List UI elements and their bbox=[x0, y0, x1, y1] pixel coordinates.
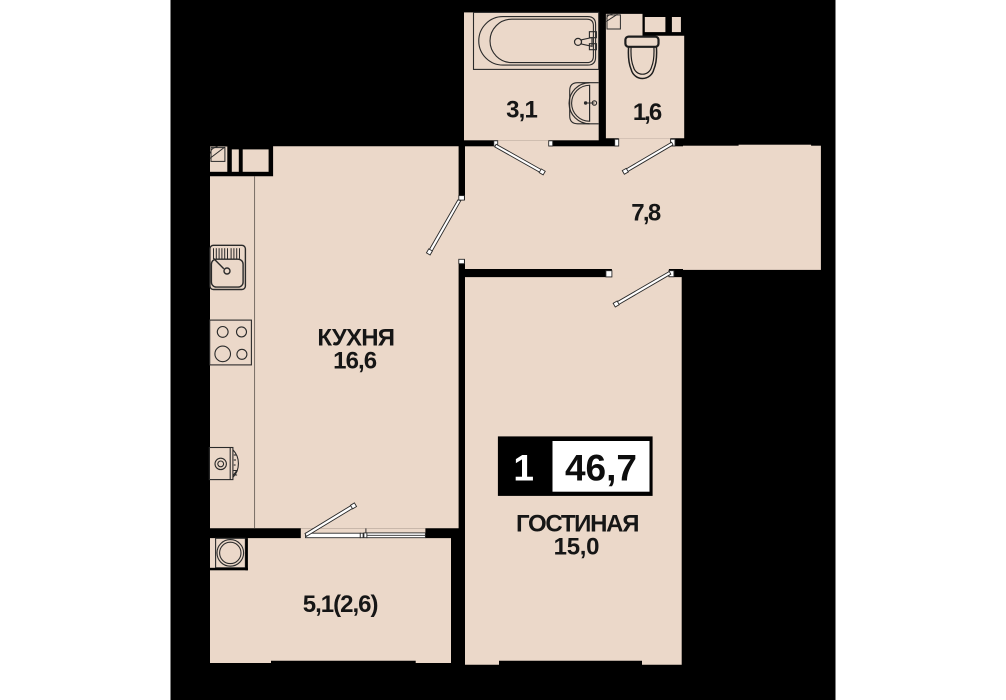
svg-text:16,6: 16,6 bbox=[333, 348, 377, 375]
svg-text:1,6: 1,6 bbox=[633, 99, 662, 126]
svg-text:46,7: 46,7 bbox=[565, 448, 637, 489]
svg-text:15,0: 15,0 bbox=[554, 534, 600, 561]
svg-text:3,1: 3,1 bbox=[506, 96, 537, 123]
svg-text:1: 1 bbox=[513, 448, 534, 489]
svg-text:7,8: 7,8 bbox=[631, 200, 661, 227]
svg-text:5,1(2,6): 5,1(2,6) bbox=[303, 591, 378, 618]
